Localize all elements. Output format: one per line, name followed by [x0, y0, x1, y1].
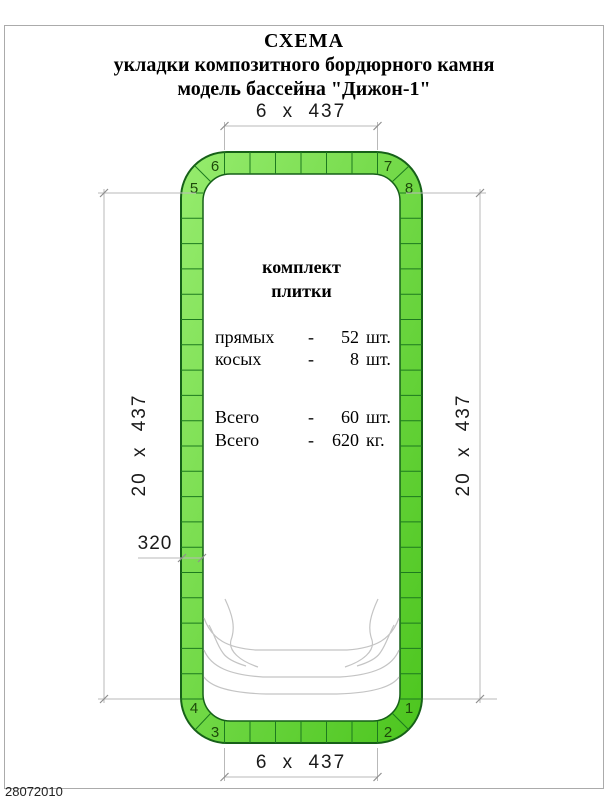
kit-header-line1: комплект: [203, 257, 400, 278]
corner-number-5: 5: [190, 180, 198, 197]
kit-row-name: прямых: [215, 326, 299, 348]
corner-number-6: 6: [211, 158, 219, 175]
corner-number-8: 8: [405, 180, 413, 197]
drawing-date: 28072010: [5, 784, 63, 799]
kit-row-value: 8: [323, 348, 359, 370]
corner-number-4: 4: [190, 700, 198, 717]
kit-row-unit: шт.: [359, 348, 397, 370]
dimension-label-top: 6 x 437: [231, 101, 371, 123]
kit-total-unit: кг.: [359, 429, 397, 452]
dimension-label-right: 20 x 437: [453, 375, 475, 515]
kit-row-dash: -: [299, 348, 323, 370]
kit-rows: прямых - 52 шт. косых - 8 шт.: [215, 326, 397, 370]
kit-header-line2: плитки: [203, 281, 400, 302]
kit-row-dash: -: [299, 326, 323, 348]
kit-total-dash: -: [299, 406, 323, 429]
kit-total-value: 60: [323, 406, 359, 429]
kit-total-name: Всего: [215, 406, 299, 429]
corner-number-1: 1: [405, 700, 413, 717]
corner-number-7: 7: [384, 158, 392, 175]
kit-totals: Всего - 60 шт. Всего - 620 кг.: [215, 406, 397, 452]
corner-number-3: 3: [211, 724, 219, 741]
kit-total-unit: шт.: [359, 406, 397, 429]
dimension-label-left: 20 x 437: [129, 375, 151, 515]
kit-row-unit: шт.: [359, 326, 397, 348]
kit-row-value: 52: [323, 326, 359, 348]
corner-number-2: 2: [384, 724, 392, 741]
dimension-label-tile-width: 320: [132, 533, 178, 555]
kit-row-name: косых: [215, 348, 299, 370]
kit-total-value: 620: [323, 429, 359, 452]
kit-total-name: Всего: [215, 429, 299, 452]
drawing-page: СХЕМА укладки композитного бордюрного ка…: [0, 0, 608, 800]
dimension-label-bottom: 6 x 437: [231, 752, 371, 774]
kit-total-dash: -: [299, 429, 323, 452]
